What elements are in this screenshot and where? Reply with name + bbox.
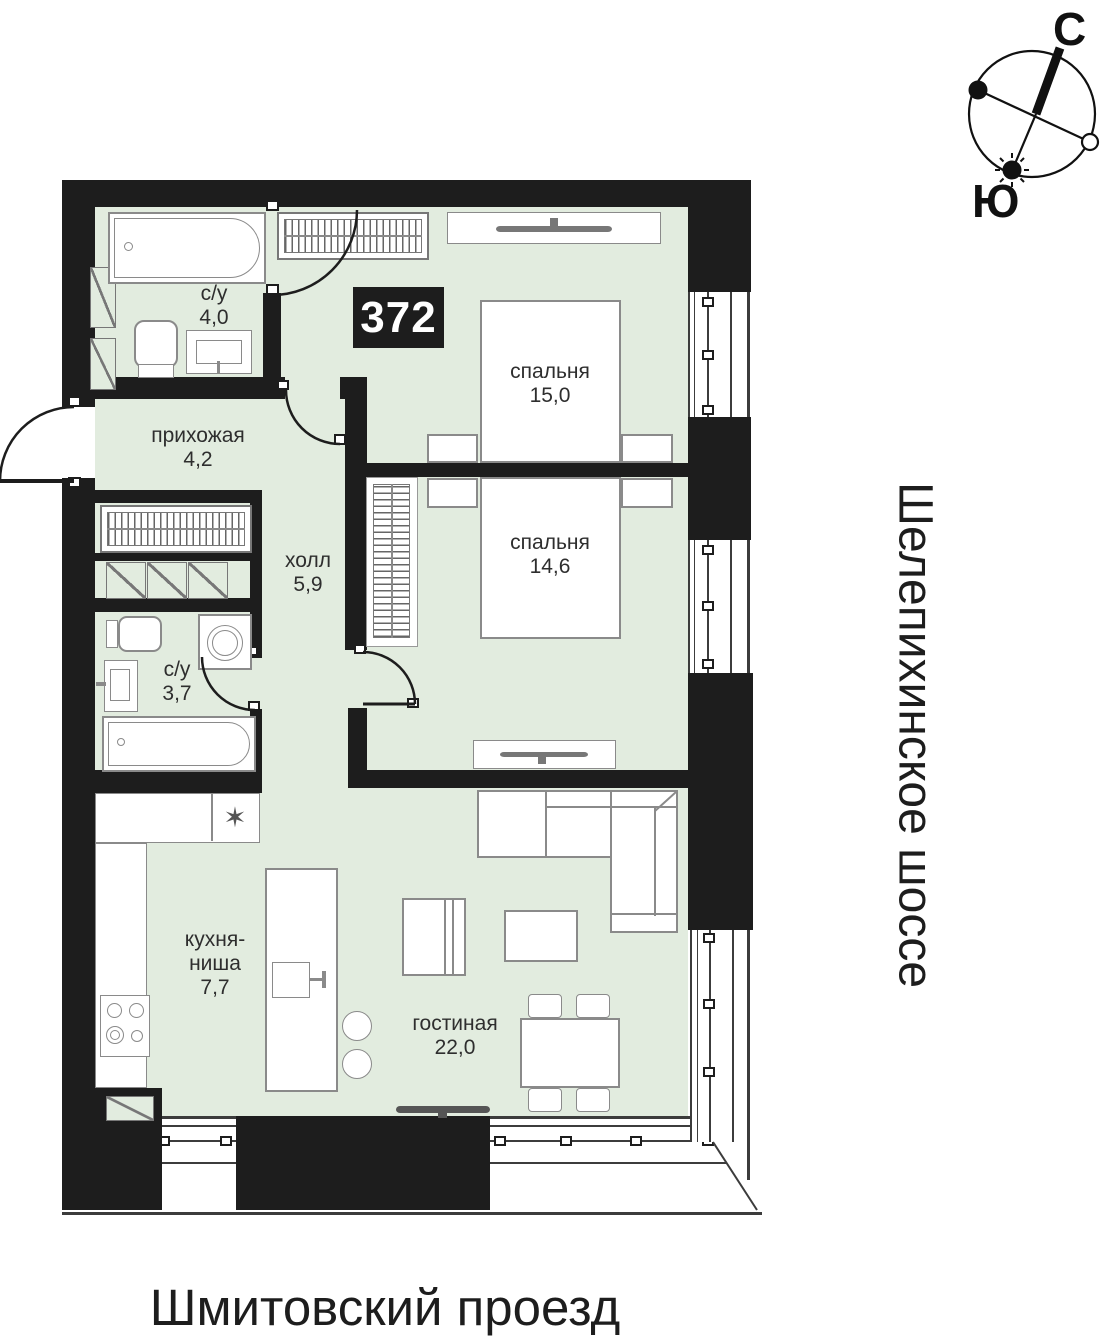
room-area: 4,0	[199, 306, 228, 330]
room-name: кухня-	[185, 928, 245, 952]
room-label-bath-mid: с/у 3,7	[162, 658, 191, 706]
street-label-bottom: Шмитовский проезд	[150, 1278, 621, 1337]
apartment-number: 372	[360, 293, 436, 343]
compass-sun-line	[1014, 114, 1036, 166]
room-name: гостиная	[412, 1012, 497, 1036]
room-label-hall: холл 5,9	[285, 549, 331, 597]
room-name2: ниша	[185, 952, 245, 976]
room-area: 14,6	[510, 555, 590, 579]
room-name: прихожая	[151, 424, 245, 448]
balcony-miter-line	[713, 1142, 757, 1210]
room-label-bedroom2: спальня 14,6	[510, 531, 590, 579]
room-area: 3,7	[162, 682, 191, 706]
room-label-kitchen: кухня- ниша 7,7	[185, 928, 245, 1000]
compass-north-label: С	[1053, 2, 1086, 56]
room-area: 7,7	[185, 976, 245, 1000]
sofa-corner-diagonal	[655, 792, 676, 811]
room-label-living: гостиная 22,0	[412, 1012, 497, 1060]
compass-dot-filled	[969, 81, 988, 100]
room-area: 4,2	[151, 448, 245, 472]
floorplan-canvas: ✶	[0, 0, 1103, 1344]
room-name: спальня	[510, 360, 590, 384]
compass-needle	[1036, 48, 1060, 114]
bath2-door-arc	[202, 657, 255, 710]
room-name: с/у	[199, 282, 228, 306]
bath1-door-arc	[272, 210, 357, 295]
compass-south-label: Ю	[972, 174, 1019, 228]
bedroom2-door-arc	[363, 652, 415, 704]
room-area: 22,0	[412, 1036, 497, 1060]
room-label-bedroom1: спальня 15,0	[510, 360, 590, 408]
room-area: 15,0	[510, 384, 590, 408]
entrance-door-arc	[0, 407, 74, 481]
room-label-hallway: прихожая 4,2	[151, 424, 245, 472]
room-name: холл	[285, 549, 331, 573]
room-name: спальня	[510, 531, 590, 555]
room-area: 5,9	[285, 573, 331, 597]
room-name: с/у	[162, 658, 191, 682]
bedroom1-door-arc	[286, 390, 340, 444]
street-label-side: Шелепихинское шоссе	[888, 482, 943, 988]
room-label-bath-top: с/у 4,0	[199, 282, 228, 330]
apartment-number-badge: 372	[353, 287, 444, 348]
compass-dot-open	[1082, 134, 1098, 150]
